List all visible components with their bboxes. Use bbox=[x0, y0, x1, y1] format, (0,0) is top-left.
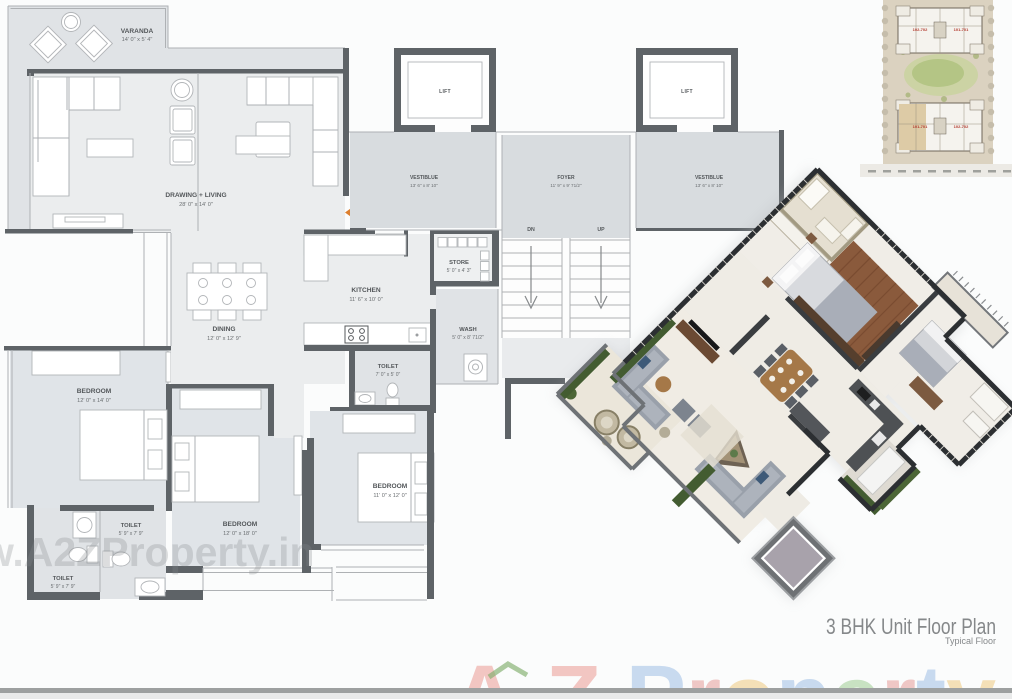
svg-text:BEDROOM: BEDROOM bbox=[223, 521, 258, 528]
svg-text:STORE: STORE bbox=[449, 260, 469, 266]
svg-text:LIFT: LIFT bbox=[439, 89, 451, 95]
svg-text:BEDROOM: BEDROOM bbox=[373, 483, 408, 490]
svg-text:14' 0" x 5' 4": 14' 0" x 5' 4" bbox=[122, 37, 153, 43]
svg-text:DRAWING + LIVING: DRAWING + LIVING bbox=[165, 192, 226, 199]
svg-text:FOYER: FOYER bbox=[557, 175, 575, 181]
svg-text:7' 0" x 5' 0": 7' 0" x 5' 0" bbox=[376, 372, 401, 378]
svg-text:102-702: 102-702 bbox=[954, 124, 969, 129]
svg-text:BEDROOM: BEDROOM bbox=[77, 388, 112, 395]
svg-text:LIFT: LIFT bbox=[681, 89, 693, 95]
svg-text:VESTIBLUE: VESTIBLUE bbox=[695, 175, 724, 181]
svg-text:5' 9" x 7' 9": 5' 9" x 7' 9" bbox=[51, 584, 76, 590]
svg-text:13' 6" x 8' 10": 13' 6" x 8' 10" bbox=[410, 183, 438, 188]
svg-text:12' 0" x 14' 0": 12' 0" x 14' 0" bbox=[77, 398, 111, 404]
svg-text:102-702: 102-702 bbox=[913, 27, 928, 32]
svg-text:w.A2ZProperty.in: w.A2ZProperty.in bbox=[0, 529, 315, 575]
svg-text:VESTIBLUE: VESTIBLUE bbox=[410, 175, 439, 181]
svg-text:13' 6" x 8' 10": 13' 6" x 8' 10" bbox=[695, 183, 723, 188]
svg-text:12' 0" x 12' 9": 12' 0" x 12' 9" bbox=[207, 336, 241, 342]
svg-text:101-701: 101-701 bbox=[913, 124, 928, 129]
svg-text:11' 6" x 10' 0": 11' 6" x 10' 0" bbox=[349, 297, 382, 303]
svg-text:TOILET: TOILET bbox=[378, 364, 399, 370]
svg-text:KITCHEN: KITCHEN bbox=[351, 287, 381, 294]
svg-text:5' 0" x 4' 3": 5' 0" x 4' 3" bbox=[447, 268, 472, 274]
svg-text:11' 9" x 9' 71/2": 11' 9" x 9' 71/2" bbox=[550, 183, 582, 188]
svg-text:UP: UP bbox=[597, 227, 605, 233]
svg-text:VARANDA: VARANDA bbox=[121, 28, 154, 35]
svg-text:DN: DN bbox=[527, 227, 535, 233]
svg-text:11' 0" x 12' 0": 11' 0" x 12' 0" bbox=[373, 493, 406, 499]
svg-text:5' 0" x 8' 71/2": 5' 0" x 8' 71/2" bbox=[452, 335, 484, 341]
svg-text:28' 0" x 14' 0": 28' 0" x 14' 0" bbox=[179, 202, 213, 208]
svg-text:Typical Floor: Typical Floor bbox=[945, 636, 996, 646]
svg-text:101-701: 101-701 bbox=[954, 27, 969, 32]
svg-text:TOILET: TOILET bbox=[53, 576, 74, 582]
svg-text:DINING: DINING bbox=[212, 326, 235, 333]
svg-text:WASH: WASH bbox=[459, 327, 476, 333]
